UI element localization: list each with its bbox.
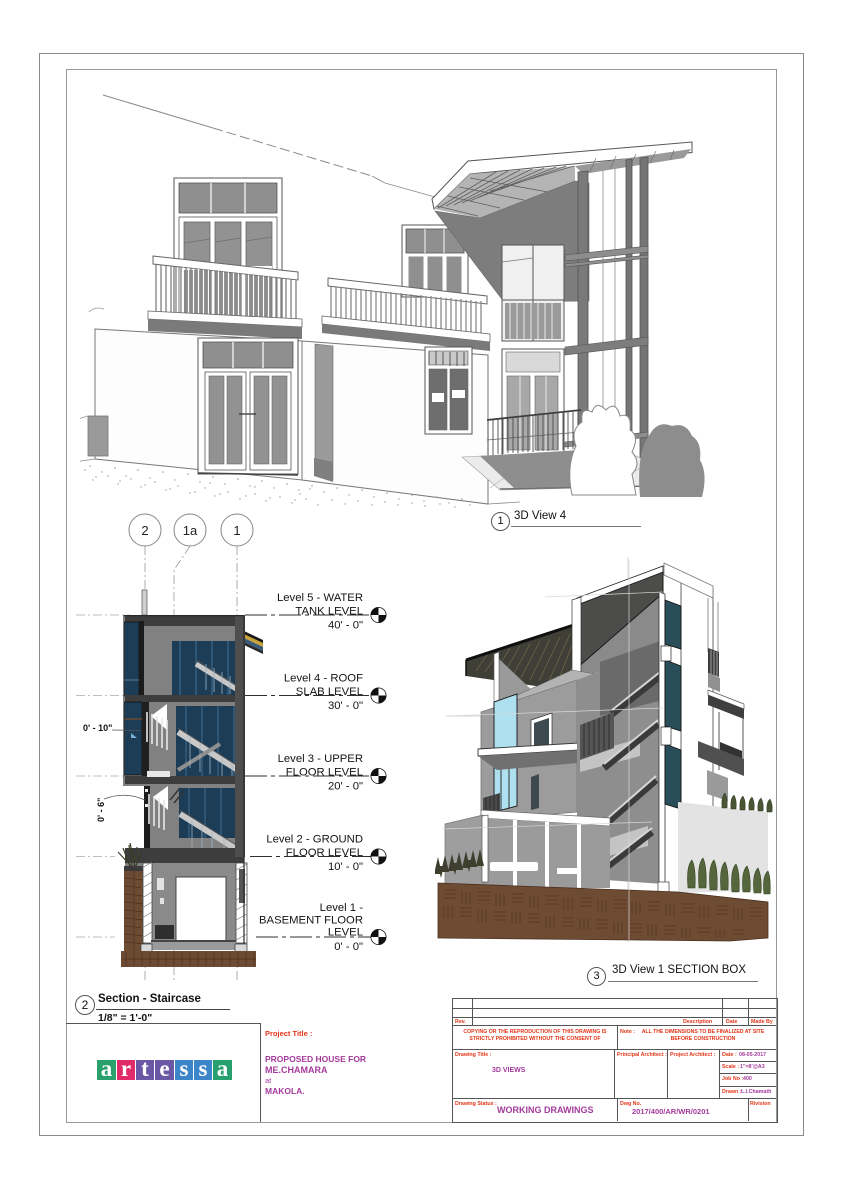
svg-text:0' - 6": 0' - 6" (96, 798, 106, 822)
svg-text:30' - 0": 30' - 0" (328, 700, 363, 712)
svg-text:1: 1 (233, 523, 240, 538)
svg-text:1a: 1a (183, 523, 198, 538)
svg-text:Level 5 - WATER: Level 5 - WATER (277, 592, 363, 604)
svg-text:LEVEL: LEVEL (328, 927, 363, 939)
svg-text:TANK LEVEL: TANK LEVEL (295, 606, 363, 618)
svg-text:0' - 0": 0' - 0" (334, 941, 363, 953)
svg-text:2: 2 (141, 523, 148, 538)
svg-text:BASEMENT FLOOR: BASEMENT FLOOR (259, 915, 363, 927)
svg-text:FLOOR LEVEL: FLOOR LEVEL (286, 847, 363, 859)
svg-text:Level 2 - GROUND: Level 2 - GROUND (266, 834, 363, 846)
svg-text:FLOOR LEVEL: FLOOR LEVEL (286, 767, 363, 779)
svg-text:0' - 10": 0' - 10" (83, 723, 112, 733)
svg-text:SLAB LEVEL: SLAB LEVEL (296, 686, 363, 698)
svg-text:Level 4 - ROOF: Level 4 - ROOF (284, 673, 363, 685)
svg-text:40' - 0": 40' - 0" (328, 620, 363, 632)
svg-text:20' - 0": 20' - 0" (328, 781, 363, 793)
svg-text:10' - 0": 10' - 0" (328, 861, 363, 873)
svg-text:Level 1 -: Level 1 - (320, 902, 364, 914)
svg-text:Level 3 - UPPER: Level 3 - UPPER (278, 753, 363, 765)
